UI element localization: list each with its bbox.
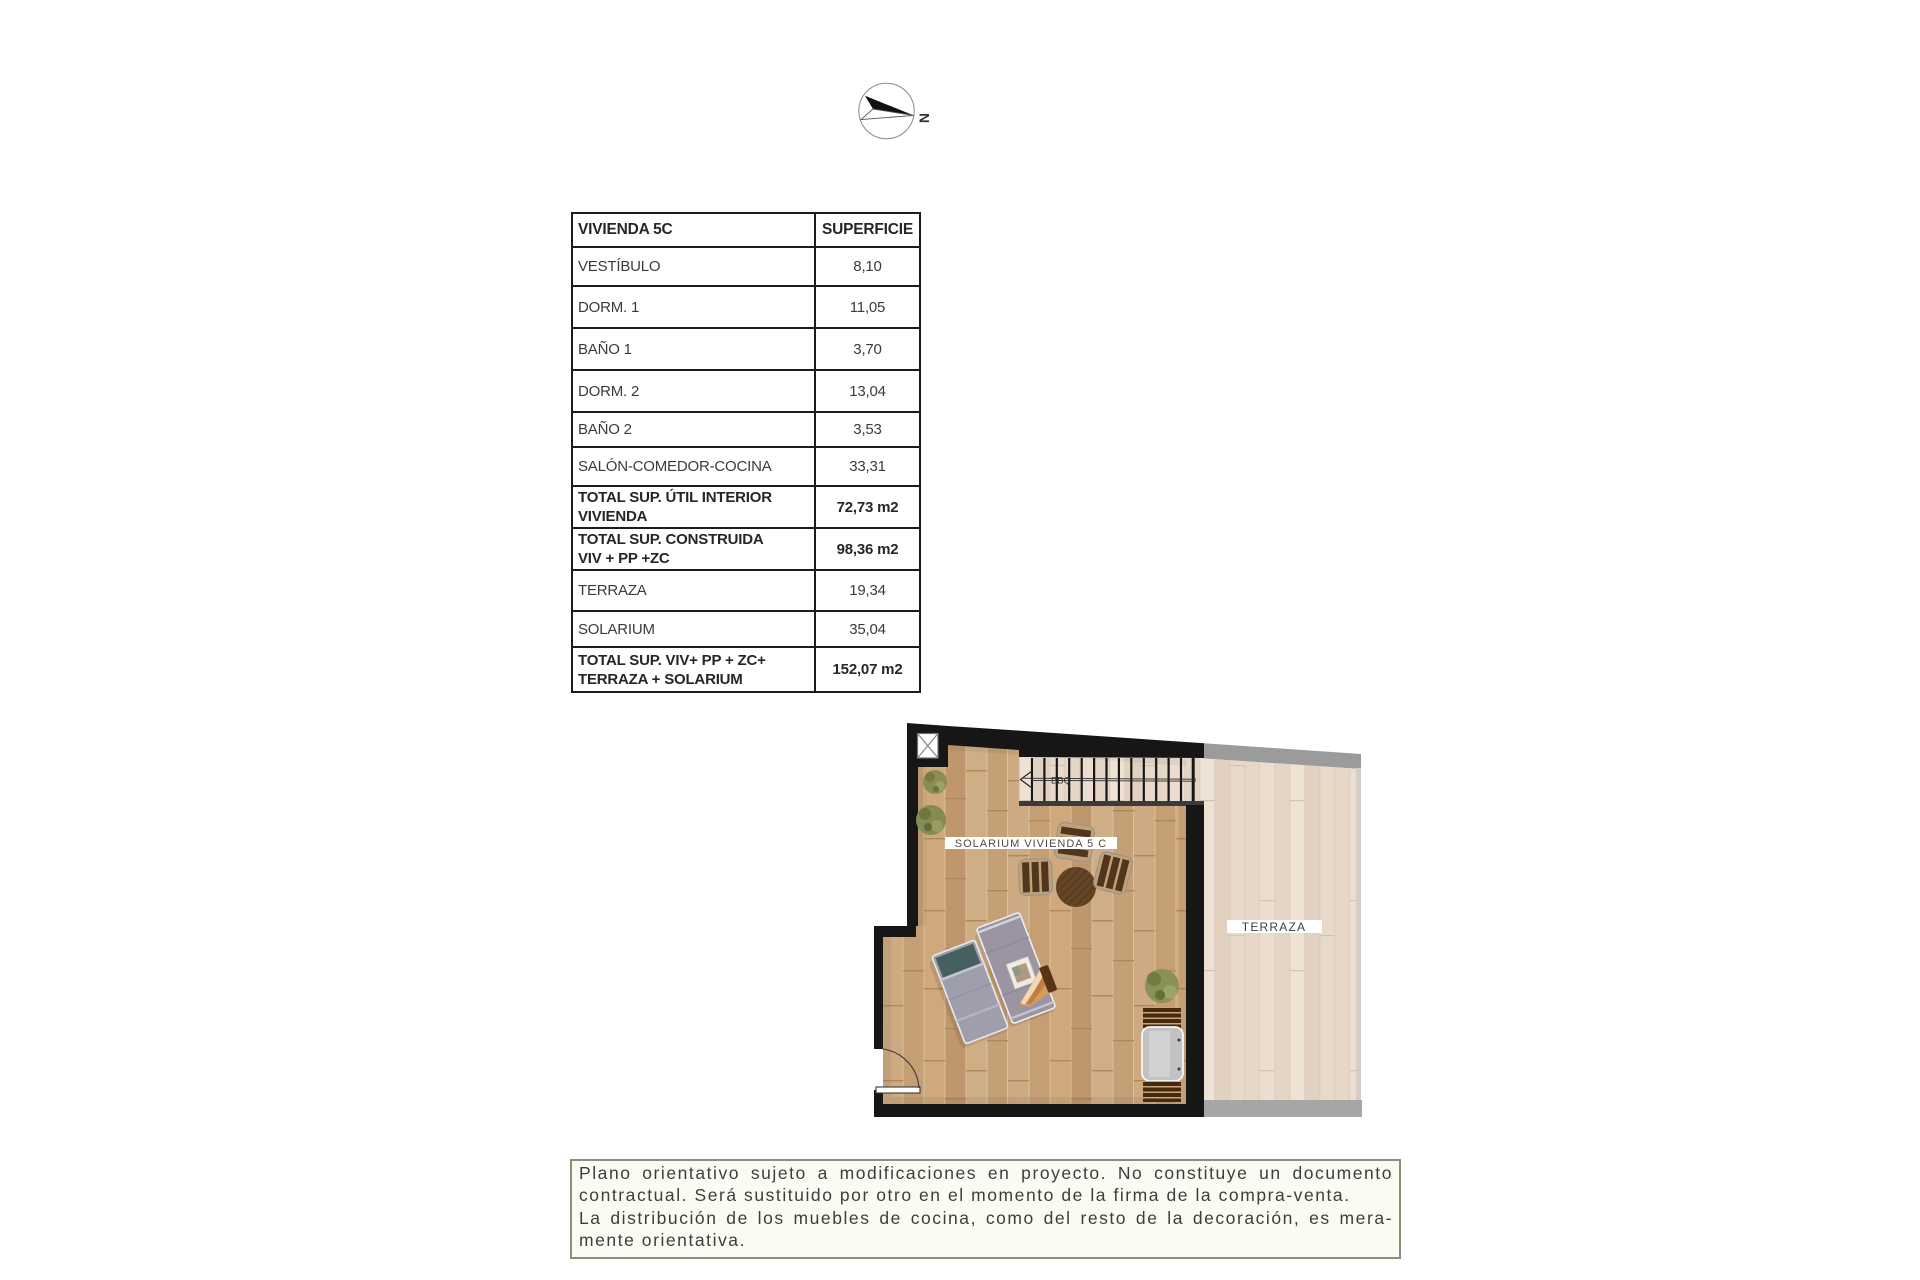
svg-text:SOLARIUM VIVIENDA 5 C: SOLARIUM VIVIENDA 5 C: [955, 838, 1107, 850]
svg-text:N: N: [916, 113, 932, 123]
svg-text:BBQ: BBQ: [1051, 776, 1071, 787]
svg-text:TERRAZA: TERRAZA: [1242, 920, 1306, 934]
